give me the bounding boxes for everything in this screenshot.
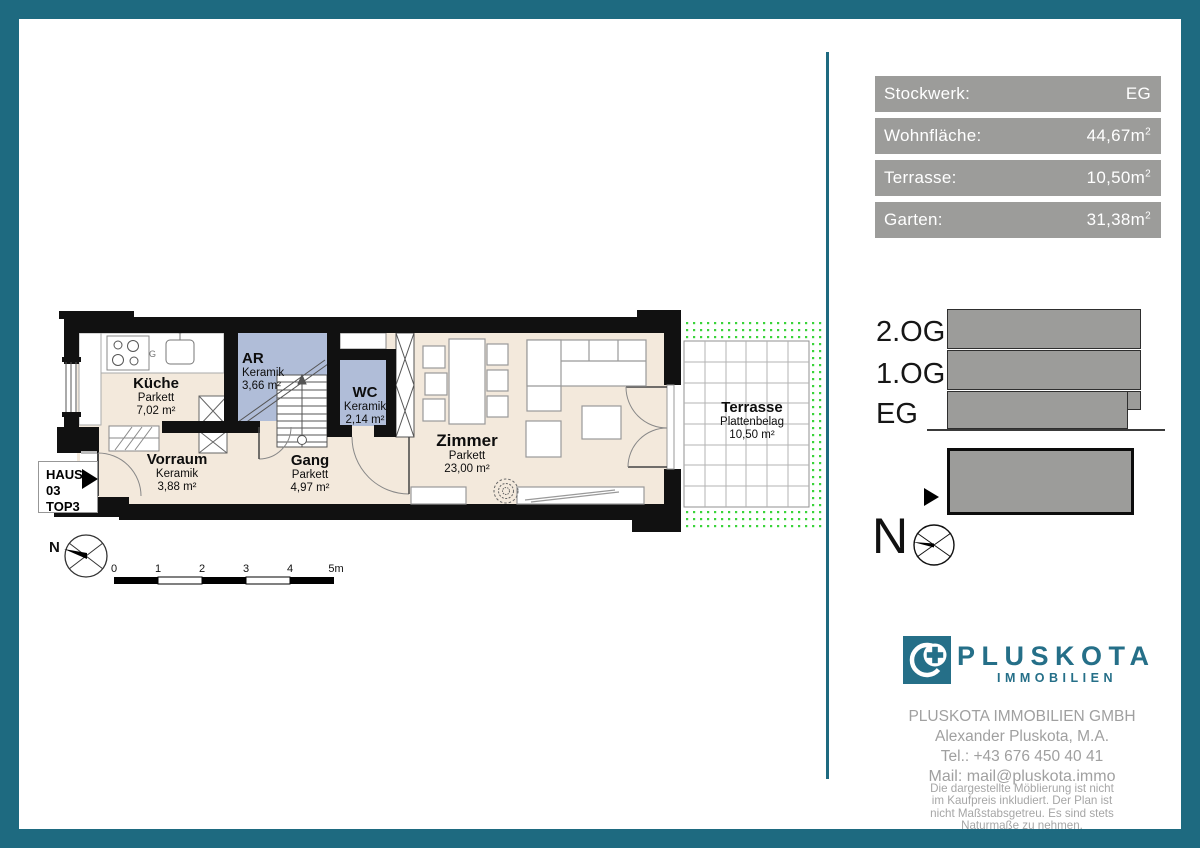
coffee-table-icon [582, 406, 621, 439]
info-label: Wohnfläche: [884, 126, 982, 146]
floorplan-page: G [0, 0, 1200, 848]
section-floor-2og [947, 309, 1141, 349]
floor-label-eg: EG [876, 398, 918, 430]
room-label-zimmer: Zimmer Parkett 23,00 m² [436, 432, 497, 476]
room-label-gang: Gang Parkett 4,97 m² [291, 453, 330, 495]
wardrobe-icon [109, 426, 159, 451]
info-row-garten: Garten: 31,38m2 [875, 202, 1161, 238]
chair-icon [487, 344, 508, 365]
window-icon [66, 362, 76, 412]
armchair-icon [526, 421, 561, 457]
section-floor-1og [947, 350, 1141, 390]
room-label-ar: AR Keramik 3,66 m² [242, 351, 284, 393]
chair-icon [487, 396, 508, 417]
section-floor-eg-notch [1127, 391, 1141, 410]
room-label-kueche: Küche Parkett 7,02 m² [133, 376, 179, 418]
chair-icon [425, 373, 447, 395]
contact-company: PLUSKOTA IMMOBILIEN GMBH [862, 707, 1182, 727]
contact-block: PLUSKOTA IMMOBILIEN GMBH Alexander Plusk… [862, 707, 1182, 787]
scale-tick: 0 [111, 563, 117, 575]
room-label-wc: WC Keramik 2,14 m² [344, 385, 386, 427]
section-floor-eg [947, 391, 1128, 429]
scale-tick: 4 [287, 563, 293, 575]
entrance-arrow-icon [82, 469, 98, 489]
room-label-terrasse: Terrasse Plattenbelag 10,50 m² [720, 400, 784, 442]
wc-shaft-icon [396, 333, 414, 437]
ground-line [927, 429, 1165, 431]
duct-strip [340, 333, 386, 349]
chair-icon [487, 370, 508, 391]
room-label-vorraum: Vorraum Keramik 3,88 m² [147, 452, 208, 494]
info-label: Stockwerk: [884, 84, 970, 104]
scale-tick: 3 [243, 563, 249, 575]
stove-icon [107, 336, 149, 370]
info-row-stockwerk: Stockwerk: EG [875, 76, 1161, 112]
info-value: 10,50m2 [1087, 168, 1151, 188]
scale-bar: 0 1 2 3 4 5m [111, 563, 344, 584]
siteplan-building [947, 448, 1134, 515]
info-row-wohnflaeche: Wohnfläche: 44,67m2 [875, 118, 1161, 154]
floor-label-1og: 1.OG [876, 358, 945, 390]
kitchen-marker-label: G [149, 349, 156, 359]
siteplan-arrow-icon [924, 488, 939, 506]
info-value: EG [1126, 84, 1151, 104]
info-panel: Stockwerk: EG Wohnfläche: 44,67m2 Terras… [875, 76, 1161, 244]
brand-subtitle: IMMOBILIEN [959, 671, 1117, 685]
sofa-chaise-icon [527, 340, 561, 411]
cabinet-icon [411, 487, 466, 504]
contact-phone: Tel.: +43 676 450 40 41 [862, 747, 1182, 767]
info-row-terrasse: Terrasse: 10,50m2 [875, 160, 1161, 196]
chair-icon [423, 346, 445, 368]
vertical-divider [826, 52, 829, 779]
floor-label-2og: 2.OG [876, 316, 945, 348]
dining-table-icon [449, 339, 485, 424]
scale-tick: 1 [155, 563, 161, 575]
compass-icon [911, 522, 959, 570]
plan-compass-icon [64, 535, 107, 577]
disclaimer-text: Die dargestellte Möblierung ist nicht im… [862, 783, 1182, 833]
scale-tick: 2 [199, 563, 205, 575]
contact-person: Alexander Pluskota, M.A. [862, 727, 1182, 747]
plan-north-label: N [49, 539, 60, 556]
info-value: 31,38m2 [1087, 210, 1151, 230]
brand-name: PLUSKOTA [957, 641, 1156, 672]
info-value: 44,67m2 [1087, 126, 1151, 146]
pluskota-logo-icon [903, 636, 951, 684]
north-label: N [872, 511, 908, 561]
chair-icon [423, 399, 445, 421]
info-label: Terrasse: [884, 168, 957, 188]
info-label: Garten: [884, 210, 943, 230]
scale-tick: 5m [328, 563, 343, 575]
